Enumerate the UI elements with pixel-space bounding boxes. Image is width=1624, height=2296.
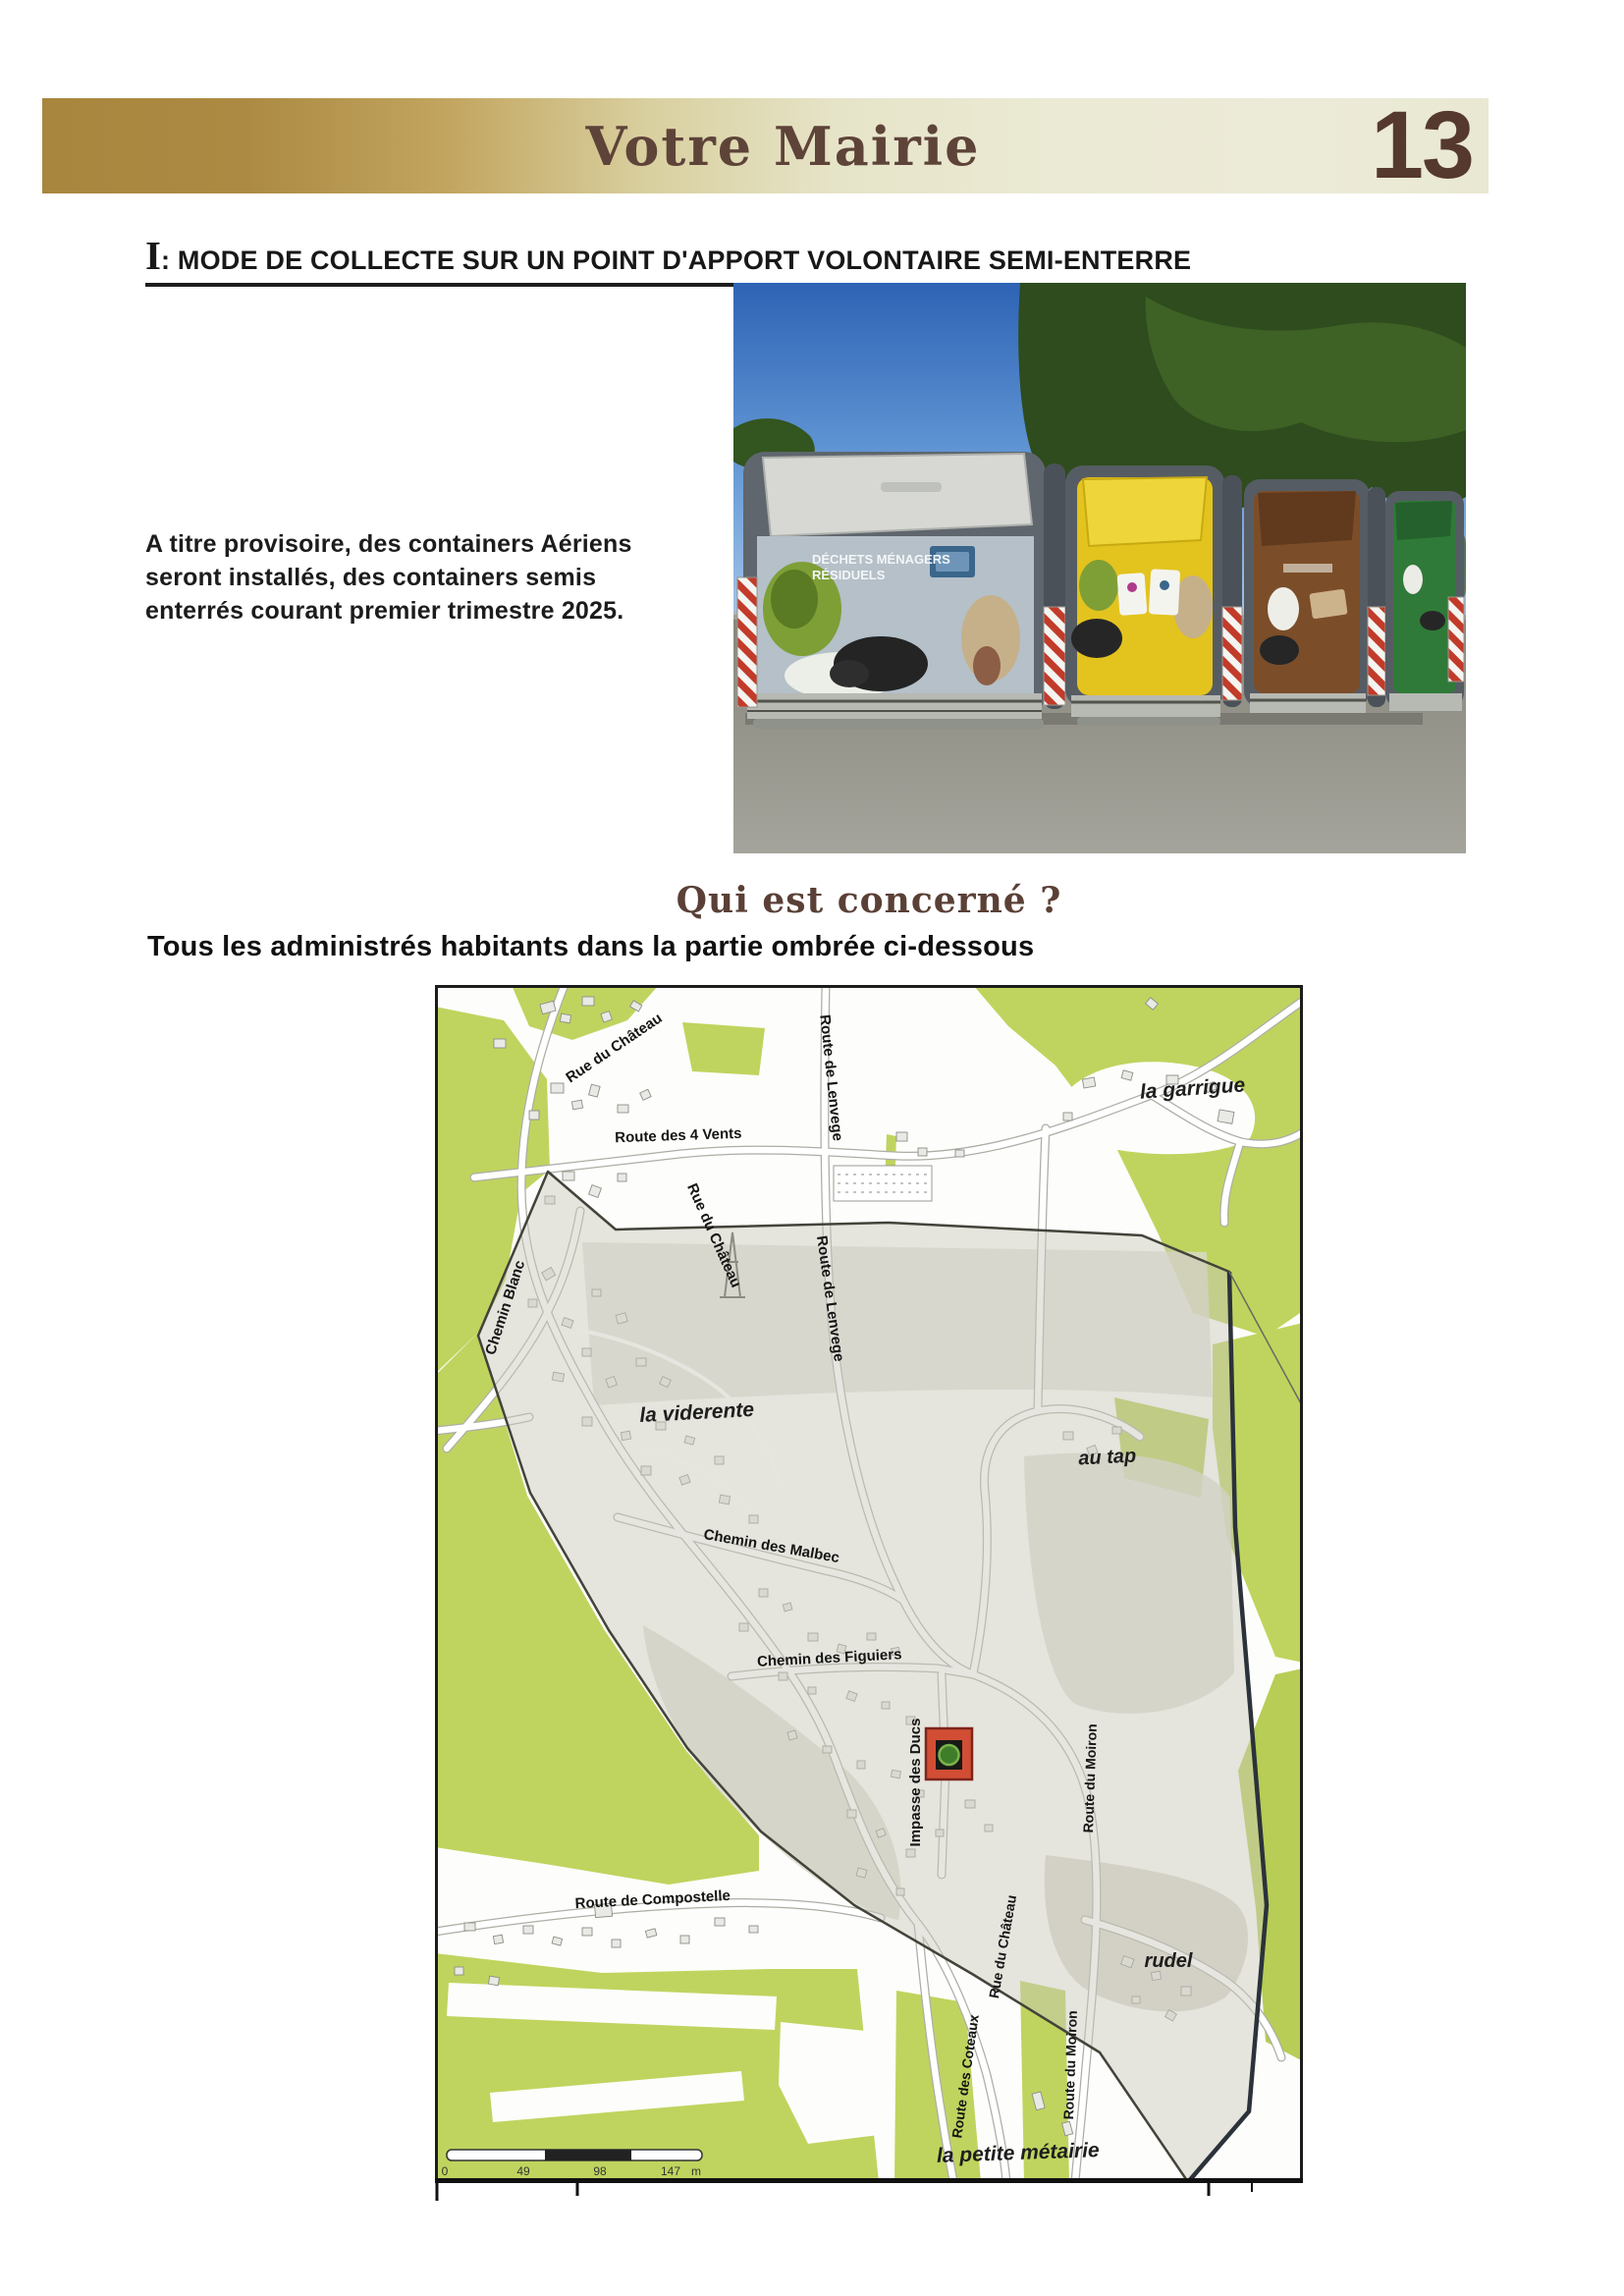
scale-tick: 98	[593, 2164, 607, 2178]
hazard-stripe	[1368, 607, 1385, 695]
hazard-stripe	[1044, 607, 1065, 705]
collection-point-marker	[926, 1728, 972, 1779]
intro-line-3: enterrés courant premier trimestre 2025.	[145, 594, 632, 628]
container-yellow-recycling	[1065, 465, 1224, 726]
section-separator: :	[161, 246, 178, 275]
scale-tick: 147	[661, 2164, 680, 2178]
map-street-label: Impasse des Ducs	[907, 1719, 924, 1847]
hazard-stripe	[1222, 607, 1242, 700]
container-green-glass	[1385, 491, 1464, 711]
map-place-label: au tap	[1078, 1445, 1137, 1469]
scale-tick: 0	[442, 2164, 449, 2178]
page-number: 13	[1371, 102, 1473, 189]
section-heading: I: MODE DE COLLECTE SUR UN POINT D'APPOR…	[145, 232, 1191, 287]
section-numeral: I	[145, 233, 161, 278]
coverage-map: Rue du Château Route de Lenvege la garri…	[435, 985, 1303, 2208]
intro-line-2: seront installés, des containers semis	[145, 561, 632, 594]
concerned-subtitle: Tous les administrés habitants dans la p…	[147, 931, 1034, 963]
container-label-line1: DÉCHETS MÉNAGERS	[812, 552, 950, 567]
orchard-block	[834, 1166, 932, 1201]
intro-line-1: A titre provisoire, des containers Aérie…	[145, 527, 632, 561]
hazard-stripe	[1448, 597, 1464, 682]
intro-paragraph: A titre provisoire, des containers Aérie…	[145, 527, 632, 628]
waste-containers-photo: DÉCHETS MÉNAGERS RÉSIDUELS	[733, 283, 1466, 853]
hazard-stripe	[737, 577, 757, 707]
page-title: Votre Mairie	[585, 115, 980, 178]
scale-unit: m	[691, 2164, 701, 2178]
scale-tick: 49	[516, 2164, 530, 2178]
section-heading-text: MODE DE COLLECTE SUR UN POINT D'APPORT V…	[178, 246, 1191, 275]
header-band: Votre Mairie 13	[42, 98, 1489, 193]
container-label-line2: RÉSIDUELS	[812, 568, 886, 582]
newsletter-page: { "header": { "title": "Votre Mairie", "…	[0, 0, 1624, 2296]
container-grey-residuels: DÉCHETS MÉNAGERS RÉSIDUELS	[737, 452, 1046, 729]
concerned-title: Qui est concerné ?	[435, 880, 1303, 921]
container-brown	[1244, 479, 1370, 713]
map-place-label: rudel	[1145, 1950, 1193, 1972]
